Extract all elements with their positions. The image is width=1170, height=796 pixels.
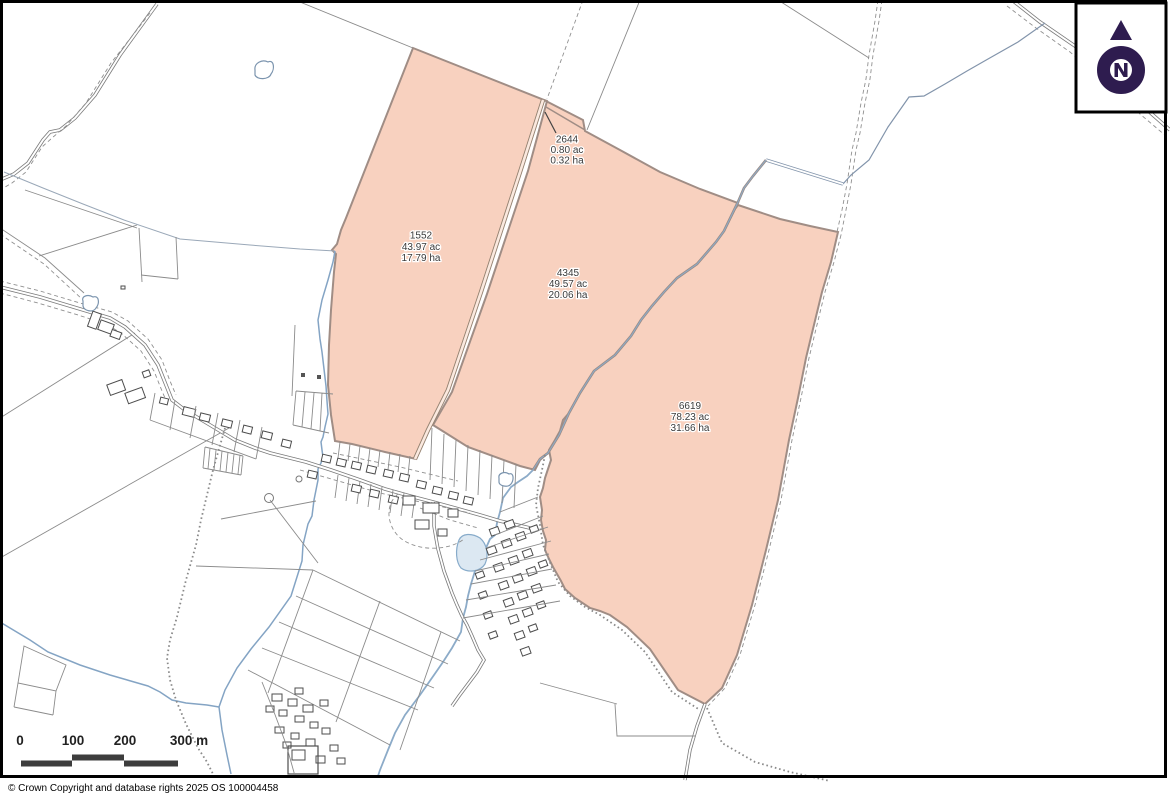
svg-text:300 m: 300 m: [170, 733, 208, 748]
svg-text:200: 200: [114, 733, 137, 748]
svg-text:1552: 1552: [410, 231, 433, 242]
svg-text:43.97 ac: 43.97 ac: [402, 242, 440, 253]
svg-text:0.80 ac: 0.80 ac: [551, 145, 584, 156]
svg-text:17.79 ha: 17.79 ha: [402, 253, 441, 264]
svg-text:0: 0: [16, 733, 24, 748]
svg-text:2644: 2644: [556, 135, 579, 146]
svg-text:31.66 ha: 31.66 ha: [671, 423, 710, 434]
svg-text:100: 100: [62, 733, 85, 748]
svg-text:20.06 ha: 20.06 ha: [549, 290, 588, 301]
svg-text:4345: 4345: [557, 268, 580, 279]
svg-text:78.23 ac: 78.23 ac: [671, 412, 709, 423]
svg-text:© Crown Copyright and database: © Crown Copyright and database rights 20…: [8, 783, 279, 794]
svg-text:6619: 6619: [679, 401, 702, 412]
svg-text:0.32 ha: 0.32 ha: [550, 156, 584, 167]
svg-text:49.57 ac: 49.57 ac: [549, 279, 587, 290]
